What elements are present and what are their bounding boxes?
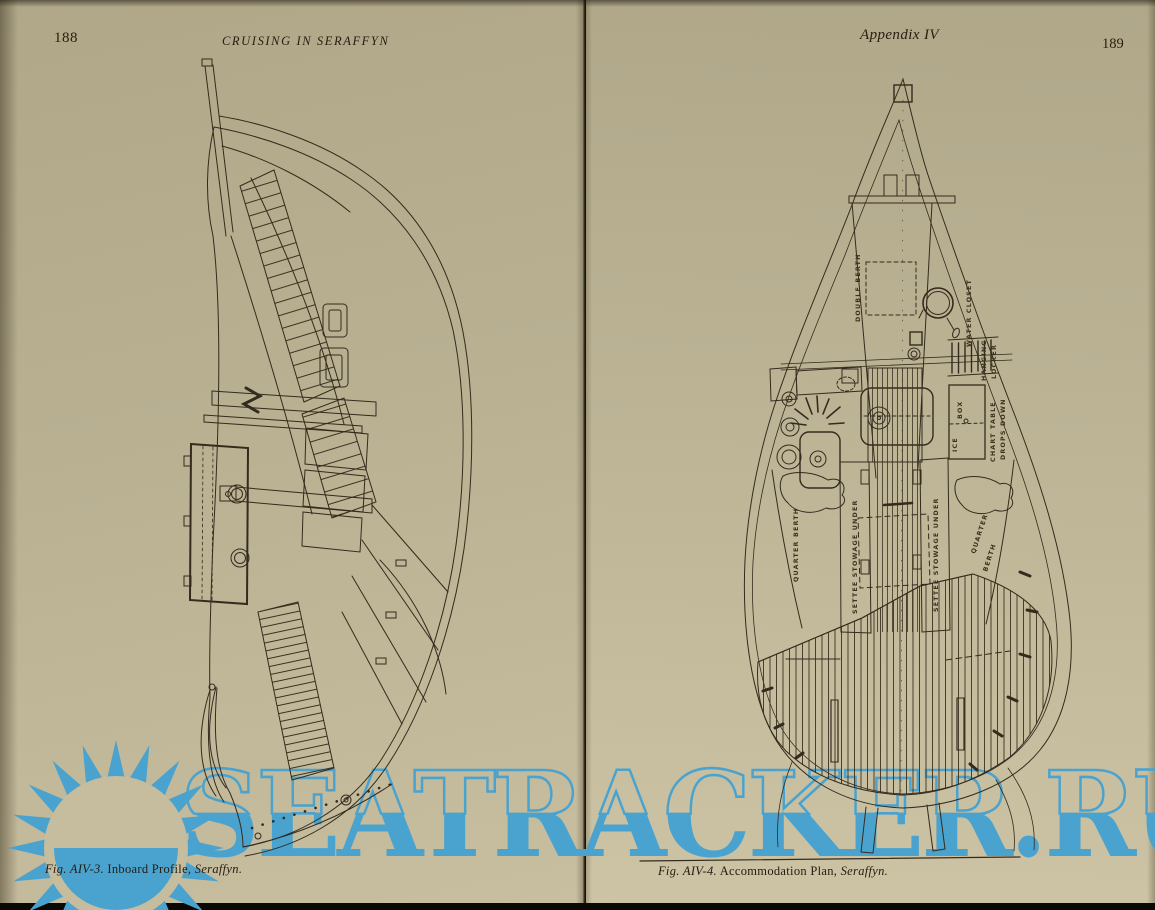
caption-fig-number: Fig. AIV-3.	[45, 862, 104, 876]
running-header-left: CRUISING IN SERAFFYN	[222, 34, 389, 49]
boomkin-prongs	[861, 803, 945, 853]
rivet-dots	[252, 784, 392, 828]
label-hanging-locker-1: HANGING	[981, 339, 988, 381]
caption-fig-aiv4: Fig. AIV-4. Accommodation Plan, Seraffyn…	[658, 864, 888, 879]
label-chart-table-1: CHART TABLE	[990, 401, 997, 462]
label-box: BOX	[957, 401, 964, 419]
chainplate-ticks	[376, 560, 406, 664]
double-berth-outline	[866, 262, 916, 315]
book-scan: SEATRACKER.RU SEATRACKER.RU	[0, 0, 1155, 910]
boat-drawings: DOUBLE BERTH WATER CLOSET HANGING LOCKER…	[0, 0, 1155, 910]
mast-step	[908, 332, 922, 360]
deck-beam-broken	[212, 388, 376, 416]
label-settee-port: SETTEE STOWAGE UNDER	[852, 499, 859, 614]
caption-rule	[640, 857, 1020, 861]
label-hanging-locker-2: LOCKER	[991, 344, 998, 379]
stern-diagonals	[342, 505, 448, 724]
caption-boat-name: Seraffyn.	[195, 862, 242, 876]
bow-bitts	[849, 175, 955, 203]
aft-deck-planking	[758, 574, 1052, 795]
mid-slats	[302, 398, 376, 518]
page-number-right: 189	[1102, 36, 1124, 53]
page-number-left: 188	[54, 30, 78, 47]
sole-slats	[258, 602, 334, 780]
forepeak-slats	[240, 170, 340, 402]
caption-boat-name: Seraffyn.	[841, 864, 888, 878]
running-header-right: Appendix IV	[860, 27, 939, 44]
burner-starburst	[791, 396, 844, 425]
label-quarter-berth-port: QUARTER BERTH	[793, 508, 800, 582]
label-settee-stbd: SETTEE STOWAGE UNDER	[933, 497, 940, 612]
masthead	[202, 59, 212, 66]
walkway-planks	[868, 368, 922, 462]
label-double-berth: DOUBLE BERTH	[855, 253, 862, 322]
label-quarter-berth-stbd-1: QUARTER	[970, 513, 990, 555]
sail-bag-stbd	[955, 477, 1013, 514]
bottom-planking-line	[243, 784, 392, 847]
label-water-closet: WATER CLOSET	[966, 279, 973, 347]
label-ice: ICE	[952, 437, 959, 452]
label-quarter-berth-stbd-2: BERTH	[982, 543, 998, 573]
caption-text: Accommodation Plan,	[717, 864, 841, 878]
caption-text: Inboard Profile,	[104, 862, 195, 876]
caption-fig-number: Fig. AIV-4.	[658, 864, 717, 878]
inboard-profile-drawing	[184, 59, 472, 856]
accommodation-plan-drawing: DOUBLE BERTH WATER CLOSET HANGING LOCKER…	[640, 79, 1071, 861]
sail-bag-port	[780, 473, 844, 513]
caption-fig-aiv3: Fig. AIV-3. Inboard Profile, Seraffyn.	[45, 862, 242, 877]
label-chart-table-2: DROPS DOWN	[1000, 398, 1007, 460]
rudder-line	[215, 688, 243, 847]
bow-rail-curve	[222, 146, 350, 212]
